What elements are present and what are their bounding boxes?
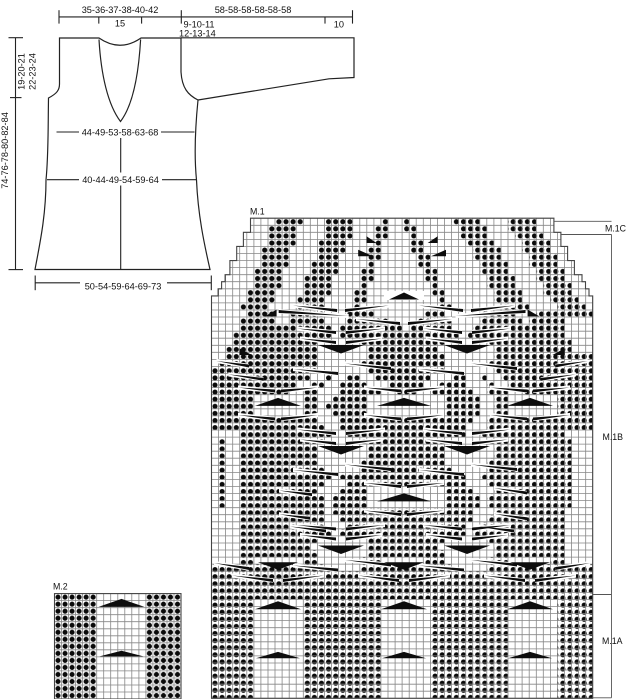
svg-text:40-44-49-54-59-64: 40-44-49-54-59-64	[82, 175, 159, 185]
svg-text:M.1B: M.1B	[603, 432, 624, 442]
svg-text:58-58-58-58-58-58: 58-58-58-58-58-58	[215, 5, 292, 15]
svg-text:50-54-59-64-69-73: 50-54-59-64-69-73	[85, 282, 162, 292]
svg-text:74-76-78-80-82-84: 74-76-78-80-82-84	[0, 112, 10, 189]
svg-text:M.1C: M.1C	[605, 224, 627, 234]
svg-text:44-49-53-58-63-68: 44-49-53-58-63-68	[82, 127, 159, 137]
svg-text:M.2: M.2	[53, 582, 68, 592]
svg-text:15: 15	[115, 19, 125, 29]
svg-text:12-13-14: 12-13-14	[179, 29, 216, 39]
svg-text:19-20-21: 19-20-21	[17, 53, 27, 90]
svg-text:22-23-24: 22-23-24	[28, 53, 38, 90]
svg-text:35-36-37-38-40-42: 35-36-37-38-40-42	[82, 5, 159, 15]
svg-text:10: 10	[334, 19, 344, 29]
svg-text:M.1A: M.1A	[602, 636, 623, 646]
svg-text:M.1: M.1	[250, 207, 265, 217]
